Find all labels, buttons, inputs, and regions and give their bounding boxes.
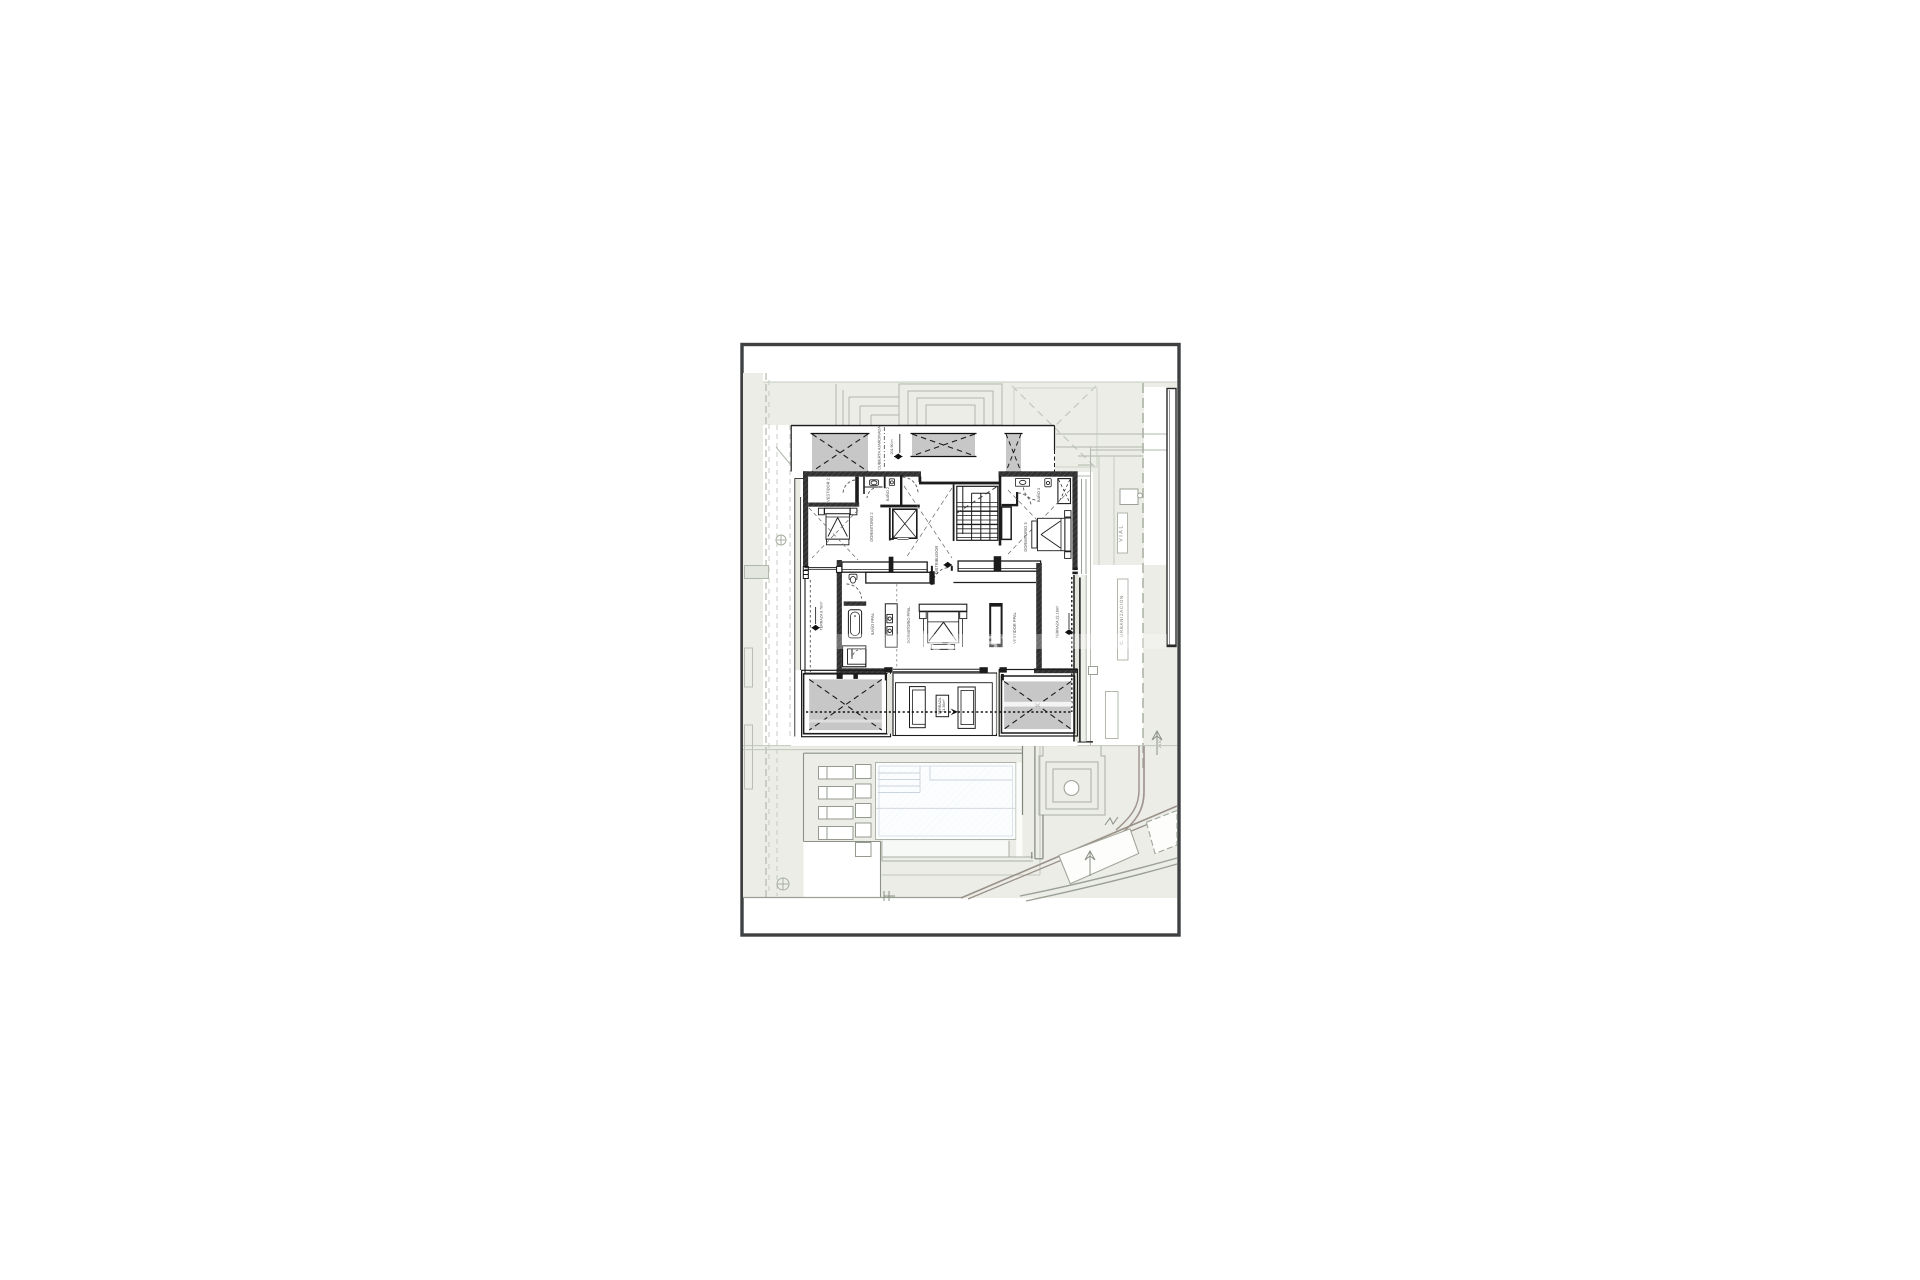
svg-text:TERRAZA 9.70m²: TERRAZA 9.70m² [820,601,824,631]
svg-text:DORMITORIO 2: DORMITORIO 2 [869,512,874,542]
svg-text:CUBIERTA AJARDINADA: CUBIERTA AJARDINADA [878,426,882,470]
svg-text:BAÑO 2: BAÑO 2 [885,487,890,501]
svg-text:TERRAZA 22.16m²: TERRAZA 22.16m² [1056,605,1060,638]
svg-text:BAÑO PPAL: BAÑO PPAL [870,612,875,635]
svg-text:DISTRIBUIDOR: DISTRIBUIDOR [934,546,939,575]
svg-text:VESTIDOR 2: VESTIDOR 2 [826,477,831,502]
svg-text:21.36m²: 21.36m² [942,699,946,713]
svg-text:24.50: 24.50 [1158,739,1162,748]
svg-text:201.90 m: 201.90 m [890,440,894,455]
svg-text:VIAL: VIAL [1119,524,1125,542]
svg-text:BAÑO 3: BAÑO 3 [1036,488,1041,502]
svg-text:DORMITORIO 3: DORMITORIO 3 [1023,522,1028,552]
